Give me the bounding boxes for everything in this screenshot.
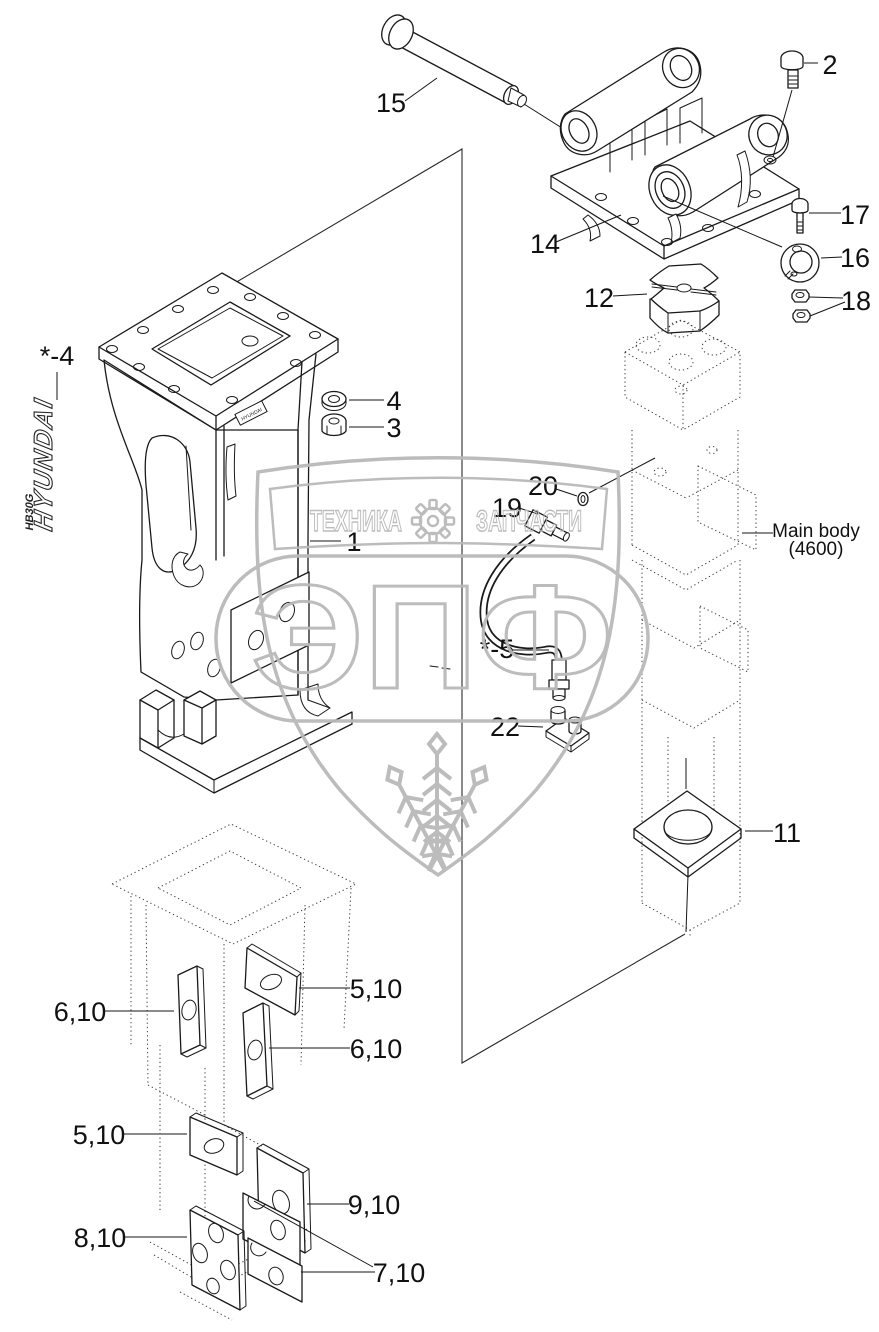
decal-model-text: HB30G xyxy=(24,492,36,531)
shim-plate-8-10-f xyxy=(190,1206,246,1310)
cross-damper-12 xyxy=(650,264,719,333)
callout-18: 18 xyxy=(841,286,871,316)
callout-15: 15 xyxy=(376,88,406,118)
callout-11: 11 xyxy=(773,818,801,848)
callout-16: 16 xyxy=(840,243,870,273)
main-body-code: (4600) xyxy=(789,539,844,560)
bolt-17 xyxy=(792,199,808,234)
shim-plates xyxy=(178,944,311,1310)
callout-3: 3 xyxy=(386,413,401,443)
watermark-acronym: ЭПФ xyxy=(251,555,613,720)
mounting-bracket-14 xyxy=(551,42,799,259)
parts-diagram-page: HYUNDAI HYUNDAI HB30G xyxy=(0,0,879,1332)
callout-2: 2 xyxy=(822,50,837,80)
callout-5-10-b: 5,10 xyxy=(350,974,403,1004)
shim-plate-6-10-c xyxy=(243,1003,273,1099)
hyundai-decal: HYUNDAI HB30G xyxy=(24,395,58,534)
seat-plate-11 xyxy=(634,758,741,932)
watermark-word-left: ТЕХНИКА xyxy=(310,505,402,538)
callout-4: 4 xyxy=(386,386,401,416)
callout-ref-4: *-4 xyxy=(40,341,75,371)
callout-12: 12 xyxy=(584,283,614,313)
gear-icon xyxy=(412,500,454,542)
callout-6-10-c: 6,10 xyxy=(350,1034,403,1064)
callout-20: 20 xyxy=(528,471,558,501)
callout-9-10: 9,10 xyxy=(348,1190,401,1220)
wheat-ears xyxy=(377,734,496,878)
callout-5-10-d: 5,10 xyxy=(73,1120,126,1150)
nut-3 xyxy=(322,414,346,436)
shim-plate-5-10-d xyxy=(190,1113,243,1175)
callout-17: 17 xyxy=(840,200,870,230)
exploded-parts-diagram: HYUNDAI HYUNDAI HB30G xyxy=(0,0,879,1332)
washer-4 xyxy=(322,392,346,411)
callout-6-10-a: 6,10 xyxy=(54,997,107,1027)
callout-14: 14 xyxy=(530,229,560,259)
lock-nuts-18 xyxy=(792,290,810,322)
shim-plate-5-10-b xyxy=(245,944,301,1015)
o-ring-20 xyxy=(578,493,588,506)
watermark-word-right: ЗАПЧАСТИ xyxy=(476,505,582,538)
callout-7-10: 7,10 xyxy=(373,1258,426,1288)
callout-8-10: 8,10 xyxy=(74,1223,127,1253)
nameplate: HYUNDAI xyxy=(235,401,267,425)
shim-plate-6-10-a xyxy=(178,966,206,1057)
stop-collar-16 xyxy=(781,244,819,282)
